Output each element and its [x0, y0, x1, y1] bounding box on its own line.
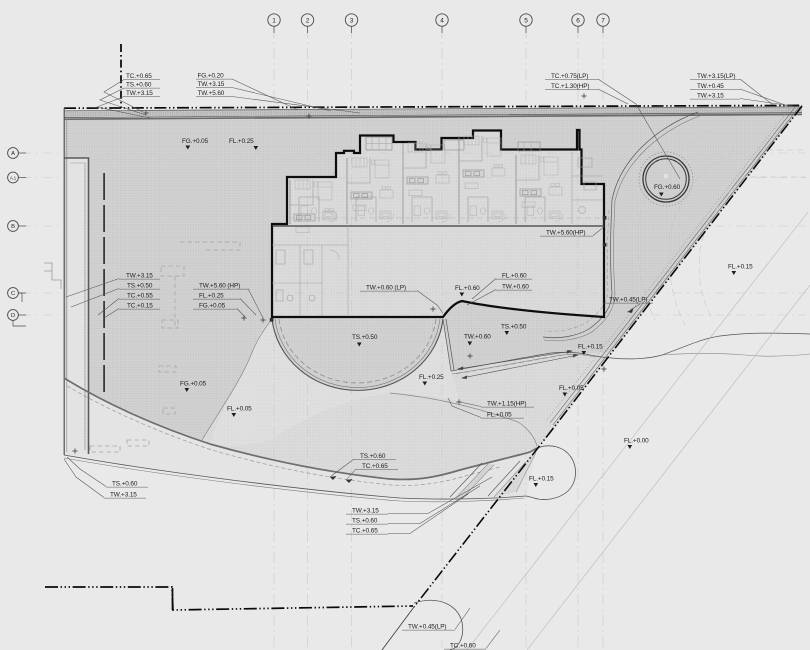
svg-text:1: 1	[272, 18, 276, 25]
svg-text:TC.+0.75(LP): TC.+0.75(LP)	[551, 73, 588, 80]
svg-text:FL.+0.15: FL.+0.15	[728, 264, 753, 271]
svg-text:FL.+0.25: FL.+0.25	[199, 293, 224, 300]
svg-text:TS.+0.60: TS.+0.60	[360, 453, 386, 460]
svg-text:FG.+0.60: FG.+0.60	[654, 184, 681, 191]
svg-text:FL.+0.25: FL.+0.25	[419, 374, 444, 381]
svg-text:TW.+3.15(LP): TW.+3.15(LP)	[697, 73, 735, 80]
svg-text:TW.+3.15: TW.+3.15	[352, 508, 379, 515]
svg-text:TW.+5.60(HP): TW.+5.60(HP)	[546, 230, 585, 237]
svg-text:TW.+3.15: TW.+3.15	[110, 492, 137, 499]
svg-text:TW.+5.60 (HP): TW.+5.60 (HP)	[199, 283, 240, 290]
svg-text:FL.+0.05: FL.+0.05	[487, 412, 512, 419]
svg-text:FL.+0.05: FL.+0.05	[227, 406, 252, 413]
svg-text:TC.+0.65: TC.+0.65	[352, 528, 378, 535]
svg-text:TS.+0.60: TS.+0.60	[112, 481, 138, 488]
svg-text:TC.+0.65: TC.+0.65	[362, 463, 388, 470]
svg-text:FL.+0.15: FL.+0.15	[529, 476, 554, 483]
svg-text:TC.+0.15: TC.+0.15	[127, 303, 153, 310]
svg-text:TS.+0.60: TS.+0.60	[126, 82, 152, 89]
svg-text:FL.+0.25: FL.+0.25	[229, 138, 254, 145]
svg-text:TW.+0.60 (LP): TW.+0.60 (LP)	[366, 285, 406, 292]
svg-text:4: 4	[440, 18, 444, 25]
svg-text:FG.+0.05: FG.+0.05	[199, 303, 226, 310]
svg-text:FL.+0.60: FL.+0.60	[455, 285, 480, 292]
svg-text:FL.+0.15: FL.+0.15	[578, 344, 603, 351]
svg-text:TS.+0.50: TS.+0.50	[501, 324, 527, 331]
svg-text:TW.+5.60: TW.+5.60	[198, 90, 225, 97]
svg-text:5: 5	[524, 18, 528, 25]
svg-text:A: A	[11, 151, 15, 157]
svg-text:B: B	[11, 224, 15, 230]
svg-text:2: 2	[306, 18, 310, 25]
svg-text:FL.+0.60: FL.+0.60	[502, 273, 527, 280]
svg-text:7: 7	[601, 18, 605, 25]
svg-text:TC.+0.65: TC.+0.65	[126, 73, 152, 80]
svg-text:D: D	[11, 313, 15, 319]
svg-text:TW.+3.15: TW.+3.15	[126, 273, 153, 280]
svg-text:FG.+0.20: FG.+0.20	[198, 73, 225, 80]
svg-text:TW.+3.15: TW.+3.15	[126, 90, 153, 97]
svg-text:TS.+0.50: TS.+0.50	[352, 334, 378, 341]
svg-text:C: C	[11, 291, 15, 297]
svg-text:TW.+1.15(HP): TW.+1.15(HP)	[487, 401, 526, 408]
svg-text:3: 3	[350, 18, 354, 25]
svg-text:TW.+0.45(LP): TW.+0.45(LP)	[609, 297, 647, 304]
svg-text:TW.+0.45(LP): TW.+0.45(LP)	[408, 624, 446, 631]
svg-text:TC.+1.30(HP): TC.+1.30(HP)	[551, 83, 589, 90]
svg-text:A.1: A.1	[10, 176, 17, 181]
svg-text:FG.+0.05: FG.+0.05	[182, 138, 209, 145]
svg-text:TW.+0.45: TW.+0.45	[697, 83, 724, 90]
svg-text:FL.+0.00: FL.+0.00	[624, 438, 649, 445]
svg-text:6: 6	[576, 18, 580, 25]
svg-text:FL.+0.05: FL.+0.05	[559, 385, 584, 392]
svg-text:TC.+0.60: TC.+0.60	[450, 643, 476, 650]
svg-text:TW.+0.60: TW.+0.60	[502, 284, 529, 291]
svg-text:FG.+0.05: FG.+0.05	[180, 381, 207, 388]
svg-text:TW.+3.15: TW.+3.15	[697, 93, 724, 100]
svg-text:TC.+0.55: TC.+0.55	[127, 293, 153, 300]
svg-text:TS.+0.60: TS.+0.60	[352, 518, 378, 525]
svg-text:TW.+0.60: TW.+0.60	[464, 334, 491, 341]
svg-text:TS.+0.50: TS.+0.50	[127, 283, 153, 290]
svg-text:TW.+3.15: TW.+3.15	[198, 81, 225, 88]
